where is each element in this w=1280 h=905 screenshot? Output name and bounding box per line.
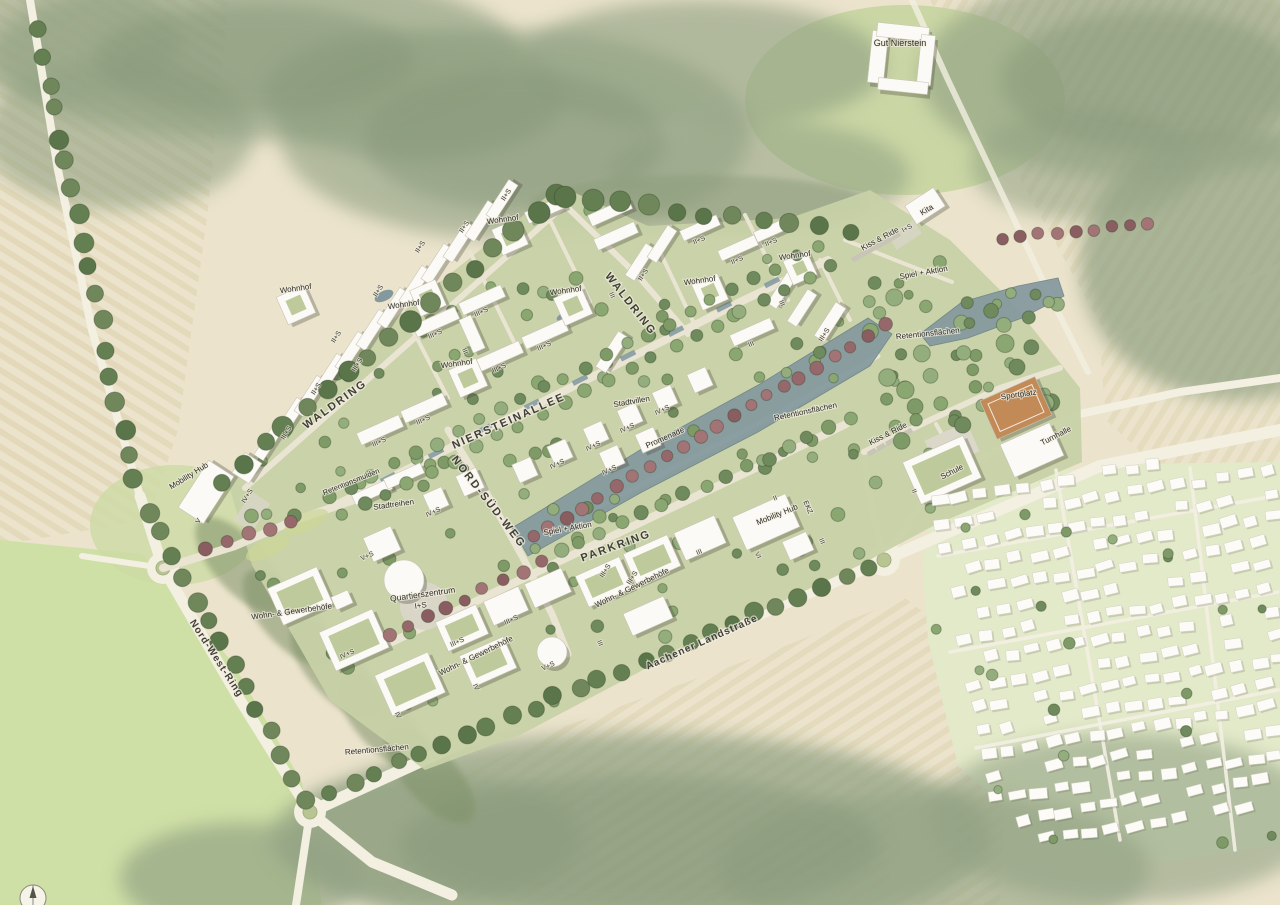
tree [392, 754, 407, 769]
house [978, 630, 992, 642]
tree [198, 542, 212, 556]
house [1138, 771, 1152, 781]
tree [235, 455, 254, 474]
house [1032, 571, 1047, 584]
tree [426, 466, 439, 479]
tree [244, 509, 258, 523]
tree [600, 348, 613, 361]
tree [728, 409, 741, 422]
tree [339, 418, 349, 428]
tree [695, 208, 711, 224]
roundabout-island [877, 553, 891, 567]
house [1252, 657, 1270, 670]
house [1090, 730, 1106, 741]
tree [61, 179, 79, 197]
tree [498, 560, 510, 572]
tree [572, 537, 584, 549]
tree [151, 522, 169, 540]
tree [336, 467, 346, 477]
house [1097, 658, 1110, 669]
tree [737, 449, 747, 459]
tree [810, 216, 828, 234]
tree [923, 368, 938, 383]
tree [767, 599, 784, 616]
tree [105, 392, 125, 412]
house [1146, 458, 1160, 470]
tree [670, 339, 683, 352]
tree [43, 78, 59, 94]
tree [668, 204, 685, 221]
tree [662, 374, 673, 385]
tree [569, 271, 583, 285]
tree [389, 457, 400, 468]
house [981, 747, 997, 759]
house [1136, 749, 1152, 759]
tree [762, 254, 771, 263]
house [1233, 777, 1248, 788]
tree [140, 504, 160, 524]
tree [931, 624, 941, 634]
tree [996, 335, 1014, 353]
tree [861, 560, 877, 576]
tree [29, 21, 46, 38]
tree [969, 380, 982, 393]
tree [116, 420, 136, 440]
tree [593, 510, 606, 523]
tree [588, 670, 606, 688]
tree [247, 701, 263, 717]
tree [337, 568, 347, 578]
tree [907, 399, 923, 415]
tree [1030, 289, 1041, 300]
tree [74, 233, 94, 253]
tree [732, 305, 746, 319]
house [1111, 632, 1125, 642]
tree [812, 578, 830, 596]
tree [954, 417, 970, 433]
tree [868, 276, 881, 289]
tree [777, 564, 789, 576]
tree [967, 364, 979, 376]
tree [591, 620, 604, 633]
tree [886, 289, 903, 306]
tree [610, 191, 631, 212]
tree [691, 329, 703, 341]
tree [1024, 340, 1039, 355]
tree [121, 447, 138, 464]
tree [863, 296, 875, 308]
tree [848, 449, 858, 459]
house [1029, 788, 1048, 800]
tree [1141, 218, 1153, 230]
tree [1043, 296, 1055, 308]
tree [613, 664, 629, 680]
tree [521, 309, 532, 320]
tree [778, 380, 790, 392]
tree [497, 574, 509, 586]
place-label: Gut Nierstein [874, 38, 927, 48]
tree [602, 374, 615, 387]
tree [685, 306, 696, 317]
house [1057, 475, 1074, 487]
tree [530, 544, 540, 554]
tree [94, 310, 113, 329]
house [933, 519, 950, 531]
tree [638, 194, 659, 215]
forest-core [95, 5, 415, 115]
house [1010, 673, 1027, 686]
tree [242, 526, 256, 540]
tree [904, 290, 913, 299]
house [1161, 768, 1177, 781]
tree [572, 679, 590, 697]
tree [675, 486, 689, 500]
tree [466, 260, 483, 277]
tree [807, 452, 818, 463]
tree [934, 397, 948, 411]
tree [538, 380, 550, 392]
tree [626, 362, 638, 374]
house [1175, 500, 1188, 510]
house [1059, 690, 1074, 701]
house [976, 606, 990, 619]
tree [1063, 637, 1075, 649]
tree [1108, 535, 1117, 544]
tree [579, 362, 592, 375]
house [1215, 710, 1228, 720]
house [1016, 483, 1030, 494]
tree [758, 294, 771, 307]
tree [853, 548, 865, 560]
house [1117, 770, 1131, 780]
tree [163, 547, 181, 565]
tree [517, 566, 531, 580]
house [1193, 710, 1207, 721]
tree [439, 601, 453, 615]
house [1080, 802, 1095, 813]
tree [458, 726, 476, 744]
tree [726, 283, 738, 295]
tree [1267, 831, 1276, 840]
house [976, 723, 990, 735]
tree [593, 527, 606, 540]
tree [956, 346, 970, 360]
tree [255, 570, 265, 580]
tree [763, 453, 777, 467]
tree [1088, 225, 1100, 237]
tree [1180, 726, 1191, 737]
tree [975, 666, 984, 675]
house [1129, 605, 1146, 615]
tree [494, 402, 507, 415]
tree [782, 440, 795, 453]
tree [747, 271, 760, 284]
tree [997, 233, 1009, 245]
tree [336, 509, 347, 520]
tree [319, 436, 331, 448]
tree [430, 438, 444, 452]
tree [366, 767, 381, 782]
tree [756, 212, 773, 229]
tree [86, 285, 103, 302]
tree [655, 499, 668, 512]
house [1073, 756, 1087, 766]
tree [1022, 311, 1035, 324]
house [1265, 489, 1279, 500]
tree [547, 504, 559, 516]
tree [961, 297, 973, 309]
tree [1014, 230, 1026, 242]
tree [1061, 527, 1071, 537]
tree [895, 349, 906, 360]
tree [402, 621, 413, 632]
tree [1032, 227, 1044, 239]
tree [659, 299, 670, 310]
tree [659, 630, 672, 643]
tree [174, 569, 192, 587]
tree [778, 284, 789, 295]
house [1192, 479, 1206, 489]
house [1102, 464, 1117, 475]
tree [528, 701, 544, 717]
house [1142, 553, 1158, 563]
tree [296, 483, 306, 493]
house [1265, 510, 1280, 521]
tree [443, 273, 462, 292]
tree [271, 746, 289, 764]
tree [409, 446, 423, 460]
tree [1020, 509, 1030, 519]
tree [644, 461, 656, 473]
tree [476, 582, 488, 594]
tree [704, 294, 715, 305]
tree [920, 300, 933, 313]
site-plan-map: VIV+SIII+SII+SII+SIII+SII+SII+SII+SII+SI… [0, 0, 1280, 905]
tree [791, 338, 803, 350]
tree [626, 470, 638, 482]
tree [503, 706, 521, 724]
tree [221, 535, 233, 547]
tree [638, 376, 650, 388]
house [1265, 724, 1280, 736]
tree [971, 586, 980, 595]
house [1266, 750, 1280, 761]
tree [123, 469, 142, 488]
tree [910, 414, 922, 426]
tree [263, 722, 280, 739]
tree [719, 470, 733, 484]
tree [994, 786, 1002, 794]
tree [411, 746, 427, 762]
tree [283, 770, 300, 787]
tree [1124, 220, 1135, 231]
tree [964, 318, 975, 329]
tree [318, 380, 337, 399]
tree [839, 569, 855, 585]
tree [592, 493, 604, 505]
masterplan-page: { "palette":{ "field":"#ebe3cc","field_s… [0, 0, 1280, 905]
house [1127, 484, 1143, 495]
tree [701, 480, 713, 492]
tree [712, 320, 724, 332]
tree [779, 213, 798, 232]
tree [824, 259, 836, 271]
house [1126, 465, 1139, 475]
tree [661, 450, 672, 461]
house [1093, 537, 1108, 550]
tree [740, 459, 753, 472]
house [1105, 701, 1120, 714]
tree [610, 479, 623, 492]
tree [433, 736, 451, 754]
tree [474, 413, 485, 424]
house [994, 484, 1011, 496]
tree [546, 625, 555, 634]
tree [577, 384, 591, 398]
tree [658, 583, 667, 592]
tree [1258, 605, 1266, 613]
tree [517, 283, 529, 295]
tree [663, 319, 676, 332]
house [1081, 828, 1097, 838]
house [937, 542, 951, 554]
tree [49, 130, 68, 149]
tree [893, 432, 910, 449]
tree [347, 774, 364, 791]
tree [879, 369, 897, 387]
tree [263, 523, 277, 537]
tree [543, 686, 561, 704]
tree [1051, 227, 1063, 239]
house [1147, 697, 1164, 710]
house [1112, 515, 1126, 527]
tree [418, 480, 430, 492]
tree [913, 345, 930, 362]
tree [297, 791, 315, 809]
tree [383, 628, 396, 641]
house [1047, 522, 1062, 533]
house [1224, 638, 1242, 650]
house [1229, 659, 1243, 672]
house [1053, 572, 1070, 583]
tree [622, 337, 633, 348]
tree [421, 609, 434, 622]
tree [616, 516, 629, 529]
place-label: I+S [414, 600, 427, 611]
tree [79, 258, 96, 275]
tree [1218, 605, 1227, 614]
tree [813, 241, 825, 253]
tree [821, 420, 835, 434]
tree [529, 447, 541, 459]
tree [1163, 549, 1173, 559]
tree [554, 186, 576, 208]
tree [582, 189, 604, 211]
tree [1181, 688, 1192, 699]
tree [528, 530, 540, 542]
house [1190, 571, 1207, 583]
tree [55, 151, 73, 169]
house [1124, 700, 1143, 712]
tree [1058, 750, 1069, 761]
house [1038, 808, 1055, 821]
tree [634, 506, 648, 520]
tree [844, 342, 855, 353]
house [1145, 673, 1160, 683]
tree [829, 373, 839, 383]
tree [754, 372, 765, 383]
tree [723, 206, 741, 224]
tree [459, 595, 470, 606]
tree [400, 477, 413, 490]
tree [789, 589, 807, 607]
tree [881, 393, 893, 405]
house [972, 488, 986, 499]
tree [445, 528, 455, 538]
tree [358, 497, 372, 511]
house [1090, 517, 1105, 527]
tree [983, 382, 993, 392]
tree [996, 318, 1011, 333]
tree [1049, 835, 1058, 844]
tree [677, 441, 689, 453]
tree [829, 350, 841, 362]
tree [1217, 837, 1229, 849]
house [1248, 754, 1265, 765]
tree [869, 476, 882, 489]
tree [528, 202, 550, 224]
tree [213, 474, 230, 491]
tree [555, 543, 569, 557]
house [1139, 651, 1157, 662]
tree [769, 264, 781, 276]
tree [694, 430, 707, 443]
tree [97, 342, 114, 359]
tree [34, 49, 51, 66]
tree [201, 613, 217, 629]
house [931, 494, 950, 506]
house [996, 603, 1011, 615]
house [1216, 472, 1229, 482]
house [1087, 610, 1101, 623]
tree [729, 348, 742, 361]
house [984, 558, 1000, 570]
house [1025, 525, 1044, 538]
house [1071, 781, 1090, 794]
tree [321, 786, 336, 801]
tree [1036, 601, 1046, 611]
house [1064, 614, 1079, 625]
tree [379, 328, 397, 346]
tree [1070, 226, 1082, 238]
tree [188, 593, 208, 613]
tree [800, 431, 812, 443]
tree [1009, 359, 1025, 375]
tree [519, 489, 530, 500]
tree [420, 293, 440, 313]
tree [862, 330, 875, 343]
tree [1106, 220, 1118, 232]
house [1063, 829, 1078, 839]
tree [1006, 288, 1017, 299]
tree [557, 374, 568, 385]
house [1271, 653, 1280, 662]
tree [1048, 704, 1060, 716]
tree [575, 503, 588, 516]
tree [645, 352, 656, 363]
tree [380, 489, 391, 500]
house [1205, 544, 1220, 556]
